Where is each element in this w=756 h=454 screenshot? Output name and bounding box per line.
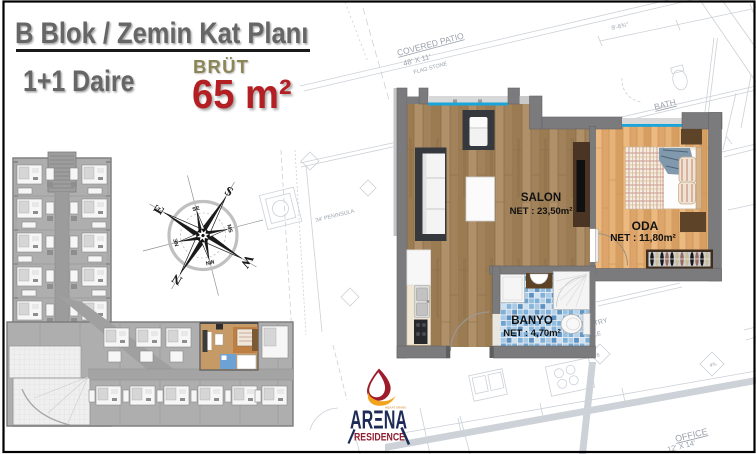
svg-text:MN: MN [205,258,215,266]
svg-text:SE: SE [192,205,201,213]
svg-text:N: N [168,271,184,289]
svg-text:NET : 23,50m²: NET : 23,50m² [510,206,573,217]
svg-text:NET : 11,80m²: NET : 11,80m² [610,233,676,244]
svg-text:SALON: SALON [521,192,561,204]
svg-text:34' PENINSULA: 34' PENINSULA [315,208,355,224]
svg-text:E: E [150,202,167,217]
svg-text:9'-6¾": 9'-6¾" [611,22,629,32]
svg-text:BANYO: BANYO [511,315,553,327]
svg-text:NE: NE [173,237,181,246]
svg-text:ARΞNA: ARΞNA [350,405,407,435]
svg-text:COVERED PATIO: COVERED PATIO [396,30,465,58]
svg-text:W: W [238,252,258,271]
svg-text:RESIDENCE: RESIDENCE [354,432,405,444]
svg-text:6: 6 [596,352,600,359]
svg-text:4¾: 4¾ [709,361,718,369]
svg-text:ODA: ODA [632,219,659,233]
svg-text:MS: MS [225,224,233,234]
svg-text:S: S [222,183,236,200]
svg-text:NET : 4,70m²: NET : 4,70m² [503,328,561,339]
